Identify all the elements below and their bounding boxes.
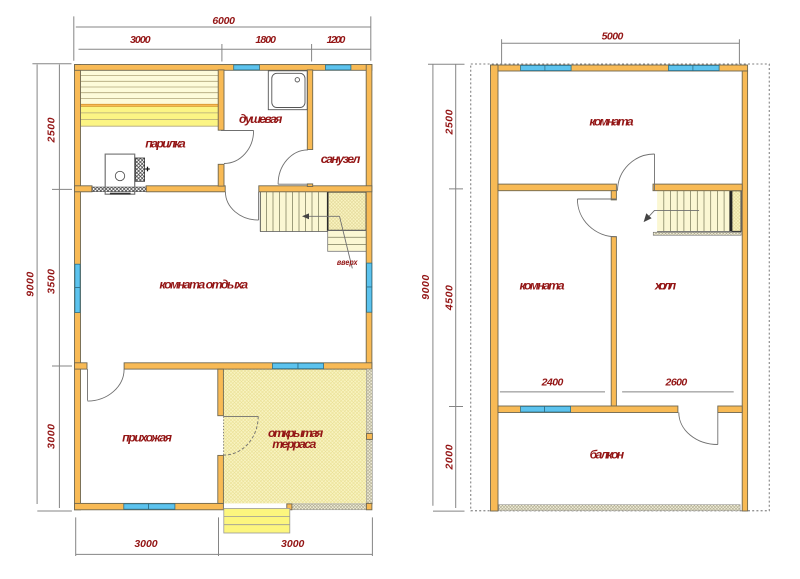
svg-text:4500: 4500 — [444, 285, 456, 311]
svg-text:2500: 2500 — [444, 109, 456, 135]
svg-text:терраса: терраса — [272, 437, 316, 451]
svg-text:2000: 2000 — [444, 444, 456, 470]
svg-text:3000: 3000 — [130, 34, 151, 46]
svg-text:9000: 9000 — [25, 272, 37, 297]
svg-text:6000: 6000 — [212, 15, 235, 27]
svg-text:3500: 3500 — [45, 269, 57, 294]
svg-text:2500: 2500 — [45, 117, 57, 143]
svg-text:3000: 3000 — [134, 538, 157, 550]
svg-text:парилка: парилка — [145, 136, 186, 150]
svg-text:комната отдыха: комната отдыха — [159, 278, 248, 292]
svg-text:9000: 9000 — [420, 275, 432, 300]
svg-text:вверх: вверх — [337, 257, 359, 267]
svg-text:прихожая: прихожая — [122, 431, 173, 445]
svg-text:санузел: санузел — [321, 152, 361, 166]
svg-text:душевая: душевая — [239, 112, 283, 126]
svg-text:2400: 2400 — [541, 376, 564, 388]
svg-text:1800: 1800 — [255, 34, 276, 46]
svg-text:3000: 3000 — [45, 424, 57, 449]
svg-text:5000: 5000 — [602, 30, 624, 42]
svg-text:комната: комната — [519, 278, 564, 292]
svg-text:холл: холл — [654, 278, 677, 292]
svg-text:балкон: балкон — [590, 448, 625, 462]
svg-text:2600: 2600 — [665, 376, 688, 388]
svg-text:3000: 3000 — [281, 538, 304, 550]
svg-text:1200: 1200 — [327, 34, 346, 46]
svg-text:комната: комната — [589, 115, 633, 129]
